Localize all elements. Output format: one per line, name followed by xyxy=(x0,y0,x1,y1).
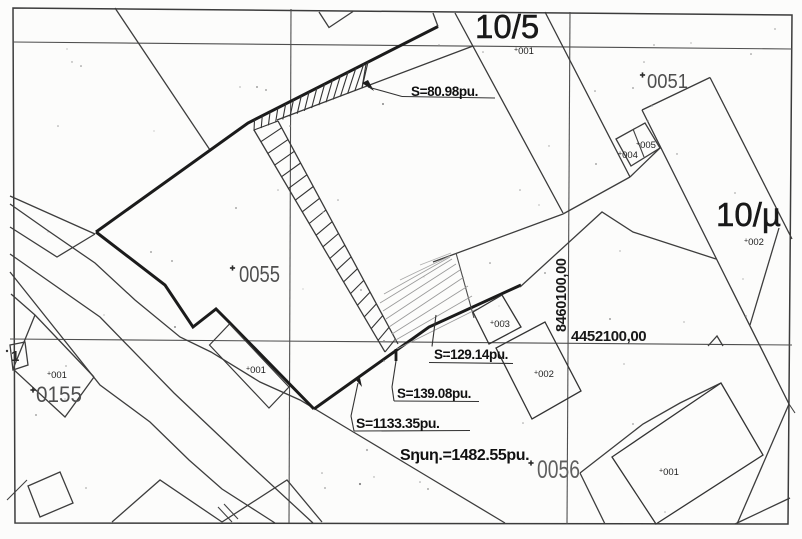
svg-text:S=1133.35pu.: S=1133.35pu. xyxy=(356,415,440,431)
svg-text:10/µ: 10/µ xyxy=(716,196,781,233)
svg-text:10/5: 10/5 xyxy=(475,8,539,45)
svg-text:8460100,00: 8460100,00 xyxy=(554,258,570,332)
svg-text:0055: 0055 xyxy=(239,261,280,287)
svg-text:Sŋuη.=1482.55pu.: Sŋuη.=1482.55pu. xyxy=(400,447,529,464)
svg-text:S=80.98pu.: S=80.98pu. xyxy=(411,84,478,99)
svg-text:0051: 0051 xyxy=(647,71,688,93)
svg-text:1: 1 xyxy=(11,348,19,365)
svg-text:0155: 0155 xyxy=(36,382,82,407)
svg-text:4452100,00: 4452100,00 xyxy=(571,328,646,345)
svg-text:S=129.14pu.: S=129.14pu. xyxy=(434,347,508,362)
svg-text:S=139.08pu.: S=139.08pu. xyxy=(397,386,471,401)
svg-text:0056: 0056 xyxy=(537,456,580,484)
